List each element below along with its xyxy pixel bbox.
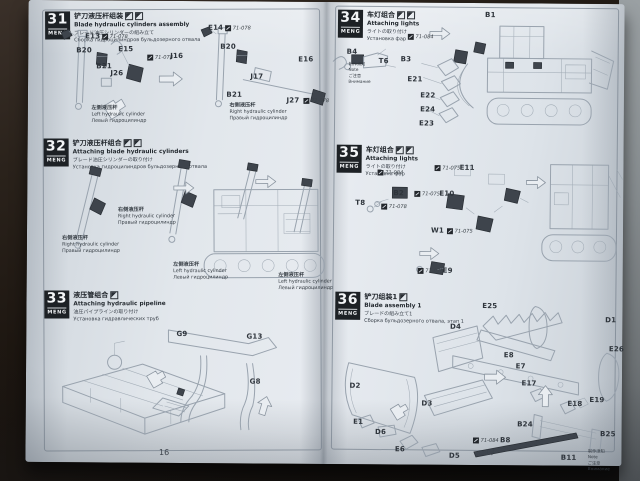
part-label: D2 [349,382,360,390]
part-label: E23 [419,119,434,127]
part-label: E1 [353,418,363,426]
photo-of-instruction-manual: 31 MENG 铲刀液压杆组装 Blade hydraulic cylinder… [0,0,640,481]
part-label: B1 [485,11,496,19]
part-label: E19 [589,396,604,404]
part-label: B25 [600,430,616,438]
step-35-diagram [335,157,622,294]
paint-chip: 71-075 [418,268,444,274]
part-label: D4 [450,323,461,331]
part-label: W1 [431,227,444,235]
part-label: E6 [395,445,405,453]
paint-brush-icon [381,204,387,210]
page-17: 34 MENG 车灯组合 Attaching lights ライトの取り付け У… [0,0,640,481]
paint-chip: 71-075 [447,228,473,234]
part-label: E18 [567,400,582,408]
part-label: E8 [504,351,514,359]
note-block: 制作须知 Note ご注意 Внимание [348,62,370,86]
part-label: E21 [407,75,422,83]
paint-brush-icon [414,191,420,197]
paint-brush-icon [447,228,453,234]
part-label: E17 [521,379,536,387]
cement-icon [407,11,415,19]
part-label: B24 [517,420,533,428]
part-label: B4 [347,48,358,56]
paint-chip: 71-078 [381,204,407,210]
page-number: 17 [485,448,495,457]
part-label: E26 [609,345,624,353]
part-label: B3 [401,55,412,63]
paint-chip: 71-084 [473,437,499,443]
paint-brush-icon [418,268,424,274]
cement-icon [397,11,405,19]
paint-brush-icon [435,165,441,171]
step-36-diagram [334,299,628,470]
part-label: E10 [439,190,454,198]
part-label: E7 [516,362,526,370]
step-34-diagram [337,19,624,144]
part-label: T6 [379,57,389,65]
part-label: B11 [561,454,577,462]
note-block: 制作须知 Note ご注意 Внимание [588,449,610,473]
cement-icon [396,146,404,154]
part-label: B8 [500,436,511,444]
part-label: B2 [393,189,404,197]
part-label: D6 [375,428,386,436]
paint-chip: 71-075 [414,191,440,197]
paint-chip: 71-084 [408,34,434,40]
cement-icon [406,146,414,154]
paint-chip: 71-084 [378,170,404,176]
paint-chip: 71-075 [435,165,461,171]
paint-brush-icon [408,34,414,40]
part-label: E9 [443,267,453,275]
part-label: E24 [420,105,435,113]
part-label: D5 [449,452,460,460]
paint-brush-icon [378,170,384,176]
part-label: E25 [482,302,497,310]
part-label: E22 [420,91,435,99]
paint-brush-icon [473,437,479,443]
title-cn: 车灯组合 [366,145,394,155]
part-label: T8 [355,199,365,207]
part-label: E11 [460,164,475,172]
part-label: D3 [421,399,432,407]
part-label: D1 [605,316,616,324]
